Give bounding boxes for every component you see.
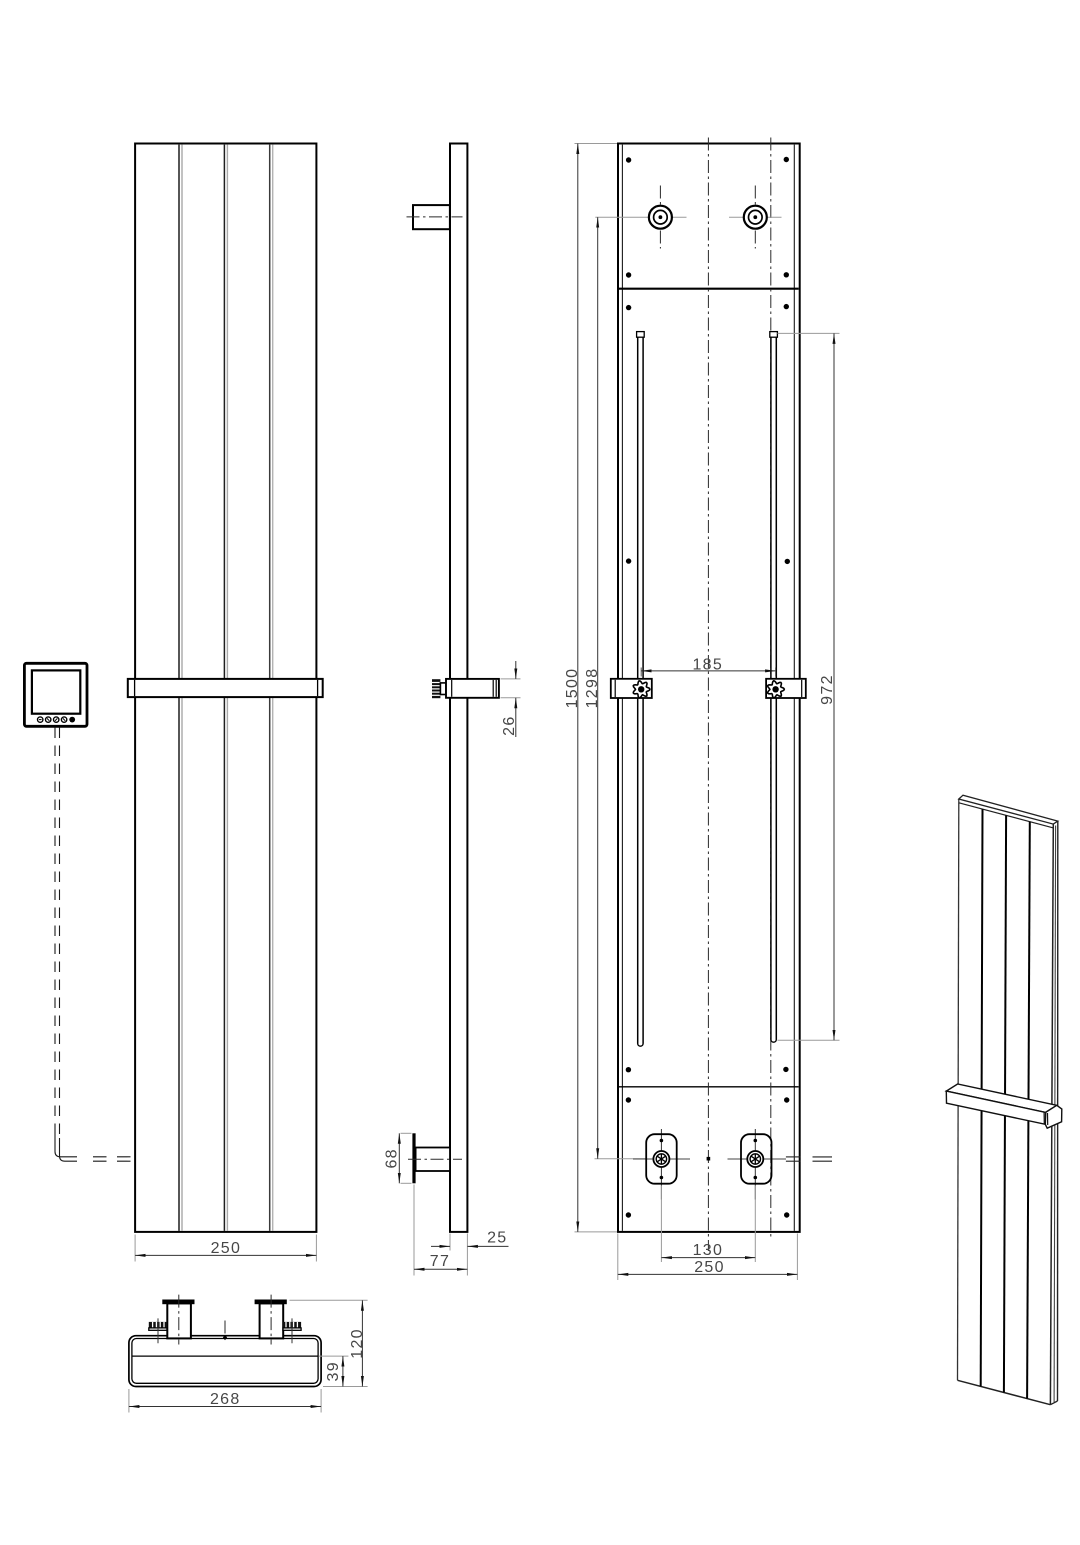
svg-text:250: 250 [211, 1240, 242, 1257]
svg-text:25: 25 [487, 1230, 507, 1247]
svg-text:268: 268 [210, 1391, 241, 1408]
svg-text:1500: 1500 [564, 668, 581, 709]
svg-text:26: 26 [501, 715, 518, 735]
svg-text:1298: 1298 [584, 668, 601, 709]
svg-text:120: 120 [349, 1328, 366, 1359]
svg-text:130: 130 [693, 1242, 724, 1259]
svg-text:39: 39 [325, 1361, 342, 1381]
svg-text:77: 77 [430, 1253, 450, 1270]
svg-text:972: 972 [819, 674, 836, 705]
svg-text:68: 68 [383, 1148, 400, 1168]
svg-text:185: 185 [692, 656, 723, 673]
svg-text:250: 250 [694, 1259, 725, 1276]
